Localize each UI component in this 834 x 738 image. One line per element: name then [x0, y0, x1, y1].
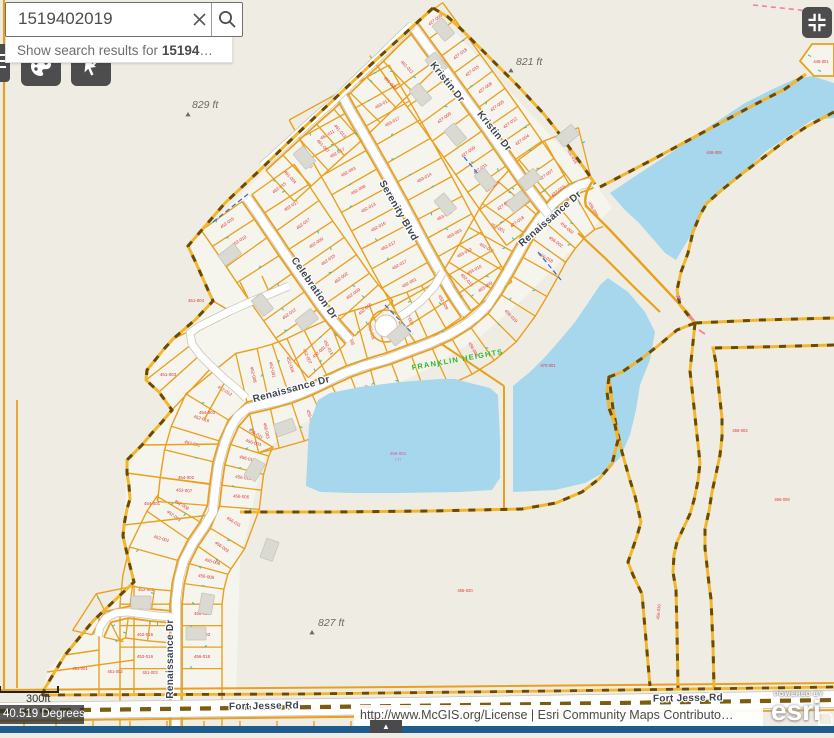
svg-text:Fort Jesse Rd: Fort Jesse Rd	[229, 700, 299, 712]
svg-text:456-018: 456-018	[194, 654, 211, 659]
svg-text:456-020: 456-020	[457, 588, 473, 593]
svg-text:456-002: 456-002	[732, 428, 748, 433]
svg-text:461-003: 461-003	[160, 372, 177, 377]
svg-text:456-008: 456-008	[774, 497, 790, 502]
svg-text:452-016: 452-016	[137, 654, 154, 659]
svg-text:448-008: 448-008	[706, 150, 722, 155]
svg-text:470-001: 470-001	[540, 363, 556, 368]
svg-text:7.77: 7.77	[395, 458, 402, 462]
svg-text:829 ft: 829 ft	[192, 99, 219, 111]
svg-text:454-002: 454-002	[178, 475, 195, 480]
svg-text:Renaissance Dr: Renaissance Dr	[165, 619, 176, 698]
svg-text:451-004: 451-004	[188, 298, 205, 303]
svg-text:454-003: 454-003	[199, 410, 216, 415]
svg-text:459-001: 459-001	[390, 451, 407, 456]
svg-text:454-001: 454-001	[144, 501, 161, 506]
svg-text:821 ft: 821 ft	[516, 56, 543, 68]
svg-text:451-002: 451-002	[107, 669, 123, 674]
svg-text:Fort Jesse Rd: Fort Jesse Rd	[653, 692, 723, 704]
svg-text:451-001: 451-001	[72, 666, 88, 671]
svg-text:446-001: 446-001	[813, 59, 829, 64]
svg-text:451-003: 451-003	[142, 670, 158, 675]
svg-text:452-016: 452-016	[137, 632, 154, 637]
svg-text:827 ft: 827 ft	[318, 617, 345, 629]
